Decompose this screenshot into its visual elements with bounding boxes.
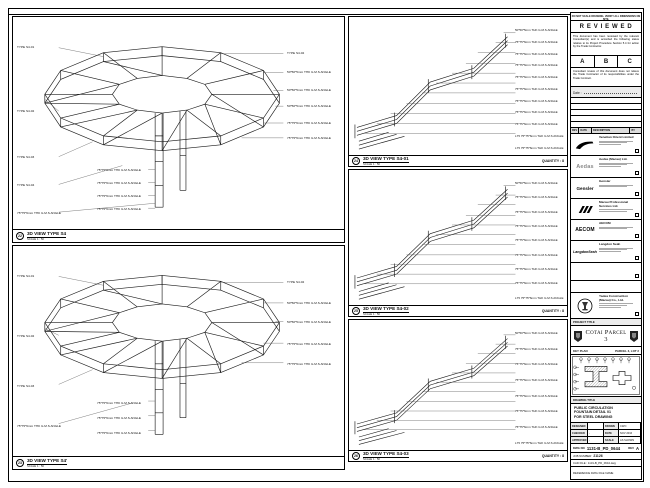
company-row-langdon-seah: LangdonSeah Langdon Seah	[571, 241, 641, 263]
designed-label: DESIGNED	[571, 423, 588, 430]
member-label: 75*75*6mm THK G.M.S ANGLE	[515, 100, 565, 103]
project-title-band: PROJECT TITLE	[571, 319, 641, 326]
scale-label: SCALE	[604, 437, 619, 444]
company-name: AECOM	[599, 222, 639, 226]
company-name: Gensler	[599, 180, 639, 184]
member-label: 50*50*5mm THK G.M.S ANGLE	[515, 332, 565, 335]
member-label: TYPE S4-02	[287, 281, 304, 284]
member-label: 75*75*6mm THK G.M.S ANGLE	[515, 225, 565, 228]
signoff-table: DESIGNED DRAWN CWO CHECKED - DATE NOV 20…	[571, 423, 641, 444]
review-checkbox	[635, 192, 639, 196]
description-col-header: DESCRIPTION	[592, 128, 631, 133]
member-label: 75*75*6mm THK G.M.S ANGLE	[287, 343, 331, 346]
drawn-value: CWO	[619, 423, 641, 430]
approved-label: APPROVED	[571, 437, 588, 444]
member-label: 75*75*6mm THK G.M.S ANGLE	[97, 208, 141, 211]
langdon-seah-logo: LangdonSeah	[573, 243, 597, 260]
view-scale: SCALE 1 : 50	[363, 163, 409, 166]
contractor-row: Yadea Construction (Macau) Co., Ltd.	[571, 293, 641, 319]
member-label: 50*50*5mm THK G.M.S ANGLE	[287, 302, 331, 305]
drawing-title-text: PUBLIC CIRCULATION FOUNTAIN DETAIL 01 FO…	[571, 404, 641, 423]
contractor-logo-icon	[573, 295, 597, 316]
detail-marker: 25	[352, 307, 360, 315]
member-label: 75*75*6mm THK G.M.S ANGLE	[515, 88, 565, 91]
member-label: TYPE S4-03	[17, 385, 34, 388]
grade-c-cell: C	[618, 56, 641, 67]
job-number-row: JOB NUMBER 21126	[571, 453, 641, 460]
reviewed-stamp-title: R E V I E W E D	[571, 21, 641, 33]
member-label: 75*75*6mm THK G.M.S ANGLE	[515, 53, 565, 56]
member-label: 50*50*5mm THK G.M.S ANGLE	[515, 182, 565, 185]
member-label: L75 75*75*6mm THK G.M.S ANGLE	[515, 442, 565, 445]
title-block: DO NOT SCALE DRAWING. VERIFY ALL DIMENSI…	[570, 12, 642, 480]
cad-file-name: CAD FILE : 1131-B_PD_0644.dwg	[573, 461, 616, 465]
member-label: 50*50*5mm THK G.M.S ANGLE	[287, 89, 331, 92]
quantity-note: QUANTITY : 8	[542, 309, 564, 313]
company-name: Aedas (Macau) Ltd.	[599, 158, 639, 162]
venetian-logo-icon	[573, 136, 597, 153]
member-label: 75*75*6mm THK G.M.S ANGLE	[515, 282, 565, 285]
dwg-no-label: DWG NO	[573, 446, 585, 450]
member-label: 75*75*6mm THK G.M.S ANGLE	[515, 41, 565, 44]
member-label: 75*75*6mm THK G.M.S ANGLE	[515, 363, 565, 366]
drawing-title-band: DRAWING TITLE	[571, 397, 641, 404]
reviewed-stamp-paragraph-2: Consultant review of this document does …	[571, 68, 641, 87]
quantity-note: QUANTITY : 8	[542, 159, 564, 163]
member-label: TYPE S4-01	[17, 275, 34, 278]
checked-value: -	[588, 430, 604, 437]
date-label: DATE	[604, 430, 619, 437]
view-scale: SCALE 1 : 50	[363, 313, 409, 316]
member-label: 50*50*5mm THK G.M.S ANGLE	[515, 29, 565, 32]
member-label: 75*75*6mm THK G.M.S ANGLE	[287, 122, 331, 125]
rev-label: REV	[628, 446, 634, 450]
member-label: 75*75*6mm THK G.M.S ANGLE	[515, 254, 565, 257]
scale-value: AS SHOWN	[619, 437, 641, 444]
review-checkbox	[635, 234, 639, 238]
member-label-stack: 50*50*5mm THK G.M.S ANGLE 75*75*6mm THK …	[515, 182, 565, 300]
member-label: 75*75*6mm THK G.M.S ANGLE	[17, 212, 61, 215]
company-row-empty	[571, 263, 641, 281]
review-checkbox	[635, 213, 639, 217]
view-panel-type-s4-01: 50*50*5mm THK G.M.S ANGLE 75*75*6mm THK …	[348, 16, 568, 167]
review-checkbox	[635, 171, 639, 175]
project-title-row: Cotai Parcel 3	[571, 326, 641, 347]
member-label: L75 75*75*6mm THK G.M.S ANGLE	[515, 297, 565, 300]
company-name: Langdon Seah	[599, 243, 639, 247]
member-label: 50*50*5mm THK G.M.S ANGLE	[287, 71, 331, 74]
member-label: 75*75*6mm THK G.M.S ANGLE	[97, 417, 141, 420]
member-label: TYPE S4-04	[17, 184, 34, 187]
view-title-bar: 25 3D VIEW TYPE S4-02 SCALE 1 : 50 QUANT…	[349, 305, 567, 316]
company-row-aedas: Aedas Aedas (Macau) Ltd.	[571, 156, 641, 178]
checked-label: CHECKED	[571, 430, 588, 437]
member-label: 75*75*6mm THK G.M.S ANGLE	[515, 111, 565, 114]
designed-value	[588, 423, 604, 430]
job-number-label: JOB NUMBER	[573, 454, 591, 458]
company-name: Macau Professional Services Ltd.	[599, 201, 639, 208]
view-title-bar: 24 3D VIEW TYPE S4-01 SCALE 1 : 50 QUANT…	[349, 155, 567, 166]
key-plan-block: KEY PLAN PARCEL 3, LOT 2	[571, 347, 641, 397]
rev-col-header: REV	[571, 128, 579, 133]
member-label: TYPE S4-03	[17, 156, 34, 159]
date-value: NOV 2016	[619, 430, 641, 437]
drawing-number-row: DWG NO 1131-B_PD_0644 REV A	[571, 444, 641, 453]
reference-dwg-row: REFERENCE DWG FILE NAME	[571, 467, 641, 479]
company-row-aecom: AECOM AECOM	[571, 220, 641, 241]
member-label: 75*75*6mm THK G.M.S ANGLE	[287, 363, 331, 366]
member-label: 75*75*6mm THK G.M.S ANGLE	[287, 137, 331, 140]
contractor-name: Yadea Construction (Macau) Co., Ltd.	[599, 295, 639, 302]
sheet-border-inner-line	[8, 14, 570, 15]
detail-marker: 23	[16, 459, 24, 467]
grade-b-cell: B	[595, 56, 619, 67]
gensler-logo: Gensler	[573, 180, 597, 196]
view-panel-3d-type-s4: TYPE S4-01 TYPE S4-02 TYPE S4-03 TYPE S4…	[12, 16, 345, 243]
review-status-grades: A B C	[571, 56, 641, 68]
member-label: 75*75*6mm THK G.M.S ANGLE	[515, 410, 565, 413]
approved-value: -	[588, 437, 604, 444]
member-label: 75*75*6mm THK G.M.S ANGLE	[515, 196, 565, 199]
grade-a-cell: A	[571, 56, 595, 67]
job-number-value: 21126	[593, 454, 602, 458]
drawing-title-line-3: FOR STEEL DRAWING	[574, 415, 638, 420]
key-plan-label: KEY PLAN	[573, 349, 588, 353]
view-title-bar: 26 3D VIEW TYPE S4-03 SCALE 1 : 50 QUANT…	[349, 450, 567, 461]
member-label: L75 75*75*6mm THK G.M.S ANGLE	[515, 135, 565, 138]
member-label-stack: 50*50*5mm THK G.M.S ANGLE 75*75*6mm THK …	[515, 332, 565, 445]
member-label: 50*50*5mm THK G.M.S ANGLE	[287, 321, 331, 324]
member-label-stack: 50*50*5mm THK G.M.S ANGLE 75*75*6mm THK …	[515, 29, 565, 150]
view-title-bar: 23 3D VIEW TYPE S4' SCALE 1 : 50	[13, 456, 344, 469]
member-label: 75*75*6mm THK G.M.S ANGLE	[515, 426, 565, 429]
view-title-bar: 22 3D VIEW TYPE S4 SCALE 1 : 50	[13, 229, 344, 242]
dwg-no-value: 1131-B_PD_0644	[587, 446, 620, 451]
member-label: 75*75*6mm THK G.M.S ANGLE	[97, 182, 141, 185]
member-label: 75*75*6mm THK G.M.S ANGLE	[515, 64, 565, 67]
company-row-mps: Macau Professional Services Ltd.	[571, 199, 641, 220]
member-label: TYPE S4-02	[17, 335, 34, 338]
company-name: Venetian Orient Limited	[599, 136, 639, 140]
project-name: Cotai Parcel 3	[583, 329, 629, 343]
view-panel-type-s4-02: 50*50*5mm THK G.M.S ANGLE 75*75*6mm THK …	[348, 169, 568, 317]
date-label: Date :	[573, 91, 582, 95]
company-row-venetian: Venetian Orient Limited	[571, 134, 641, 156]
member-label: TYPE S4-02	[287, 52, 304, 55]
drawing-sheet: TYPE S4-01 TYPE S4-02 TYPE S4-03 TYPE S4…	[0, 0, 650, 488]
review-checkbox	[635, 256, 639, 260]
member-label: 50*50*5mm THK G.M.S ANGLE	[287, 105, 331, 108]
member-label: TYPE S4-02	[17, 110, 34, 113]
stamp-date-row: Date :	[571, 87, 641, 98]
detail-marker: 24	[352, 157, 360, 165]
member-label: 75*75*6mm THK G.M.S ANGLE	[515, 268, 565, 271]
by-col-header: BY	[630, 128, 641, 133]
view-scale: SCALE 1 : 50	[27, 238, 66, 241]
member-label: 75*75*6mm THK G.M.S ANGLE	[515, 395, 565, 398]
reference-dwg-label: REFERENCE DWG FILE NAME	[573, 471, 613, 475]
member-label: 75*75*6mm THK G.M.S ANGLE	[17, 425, 61, 428]
aecom-logo: AECOM	[573, 222, 597, 238]
detail-marker: 22	[16, 232, 24, 240]
view-scale: SCALE 1 : 50	[363, 458, 409, 461]
fountain-structure-wireframe	[13, 246, 344, 456]
review-checkbox	[635, 312, 639, 316]
aedas-logo: Aedas	[573, 158, 597, 175]
key-plan-map	[571, 355, 641, 396]
mps-logo-icon	[573, 201, 597, 217]
drawn-label: DRAWN	[604, 423, 619, 430]
reviewed-stamp-paragraph-1: This document has been reviewed by the r…	[571, 33, 641, 56]
key-plan-parcel-ref: PARCEL 3, LOT 2	[615, 349, 639, 353]
member-label: 75*75*6mm THK G.M.S ANGLE	[97, 432, 141, 435]
date-fill-line	[584, 93, 637, 94]
cad-file-row: CAD FILE : 1131-B_PD_0644.dwg	[571, 460, 641, 467]
project-seal-icon	[573, 330, 583, 343]
member-label: 75*75*6mm THK G.M.S ANGLE	[515, 123, 565, 126]
member-label: 75*75*6mm THK G.M.S ANGLE	[97, 402, 141, 405]
date-col-header: DATE	[579, 128, 592, 133]
project-seal-icon	[629, 330, 639, 343]
member-label: L75 75*75*6mm THK G.M.S ANGLE	[515, 147, 565, 150]
view-panel-3d-type-s4-prime: TYPE S4-01 TYPE S4-02 TYPE S4-03 75*75*6…	[12, 245, 345, 470]
member-label: 75*75*6mm THK G.M.S ANGLE	[97, 195, 141, 198]
member-label: 75*75*6mm THK G.M.S ANGLE	[515, 379, 565, 382]
member-label: 75*75*6mm THK G.M.S ANGLE	[97, 169, 141, 172]
member-label: 75*75*6mm THK G.M.S ANGLE	[515, 211, 565, 214]
member-label: 75*75*6mm THK G.M.S ANGLE	[515, 76, 565, 79]
member-label: 75*75*6mm THK G.M.S ANGLE	[515, 239, 565, 242]
detail-marker: 26	[352, 452, 360, 460]
no-scale-note: DO NOT SCALE DRAWING. VERIFY ALL DIMENSI…	[571, 13, 641, 21]
view-scale: SCALE 1 : 50	[27, 465, 67, 468]
company-row-gensler: Gensler Gensler	[571, 178, 641, 199]
view-panel-type-s4-03: 50*50*5mm THK G.M.S ANGLE 75*75*6mm THK …	[348, 319, 568, 462]
rev-value: A	[636, 446, 639, 451]
review-checkbox	[635, 274, 639, 278]
company-row-empty	[571, 281, 641, 293]
quantity-note: QUANTITY : 8	[542, 454, 564, 458]
review-checkbox	[635, 149, 639, 153]
member-label: TYPE S4-01	[17, 46, 34, 49]
member-label: 75*75*6mm THK G.M.S ANGLE	[515, 348, 565, 351]
